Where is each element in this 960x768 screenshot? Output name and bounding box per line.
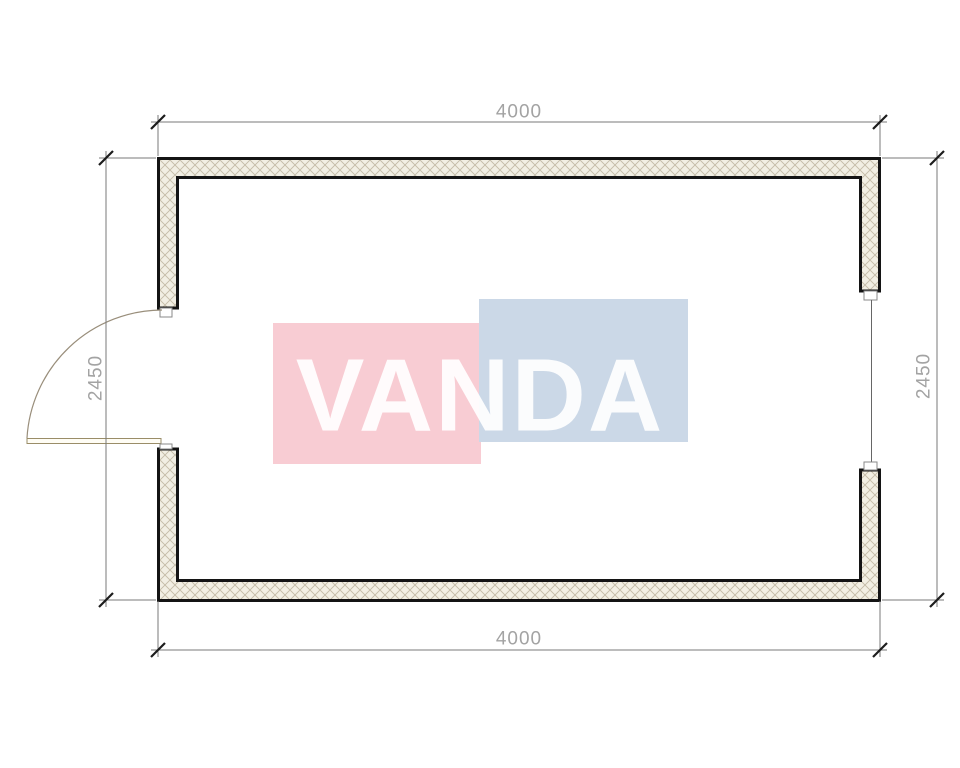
dimension-label-top: 4000 [496,103,542,122]
dimension-label-bottom: 4000 [496,630,542,649]
door-jamb-top [160,308,172,317]
door-jamb-bottom [160,444,172,449]
watermark-logo-text: VANDA [296,344,665,447]
floor-plan-canvas: 4000 4000 2450 2450 VANDA [0,0,960,768]
wall-upper-section [159,159,880,309]
window-jamb-bottom [864,462,877,470]
door-leaf [27,439,161,444]
wall-lower-section [159,449,880,601]
dimension-label-right: 2450 [915,353,934,399]
window-jamb-top [864,291,877,300]
dimension-label-left: 2450 [87,355,106,401]
